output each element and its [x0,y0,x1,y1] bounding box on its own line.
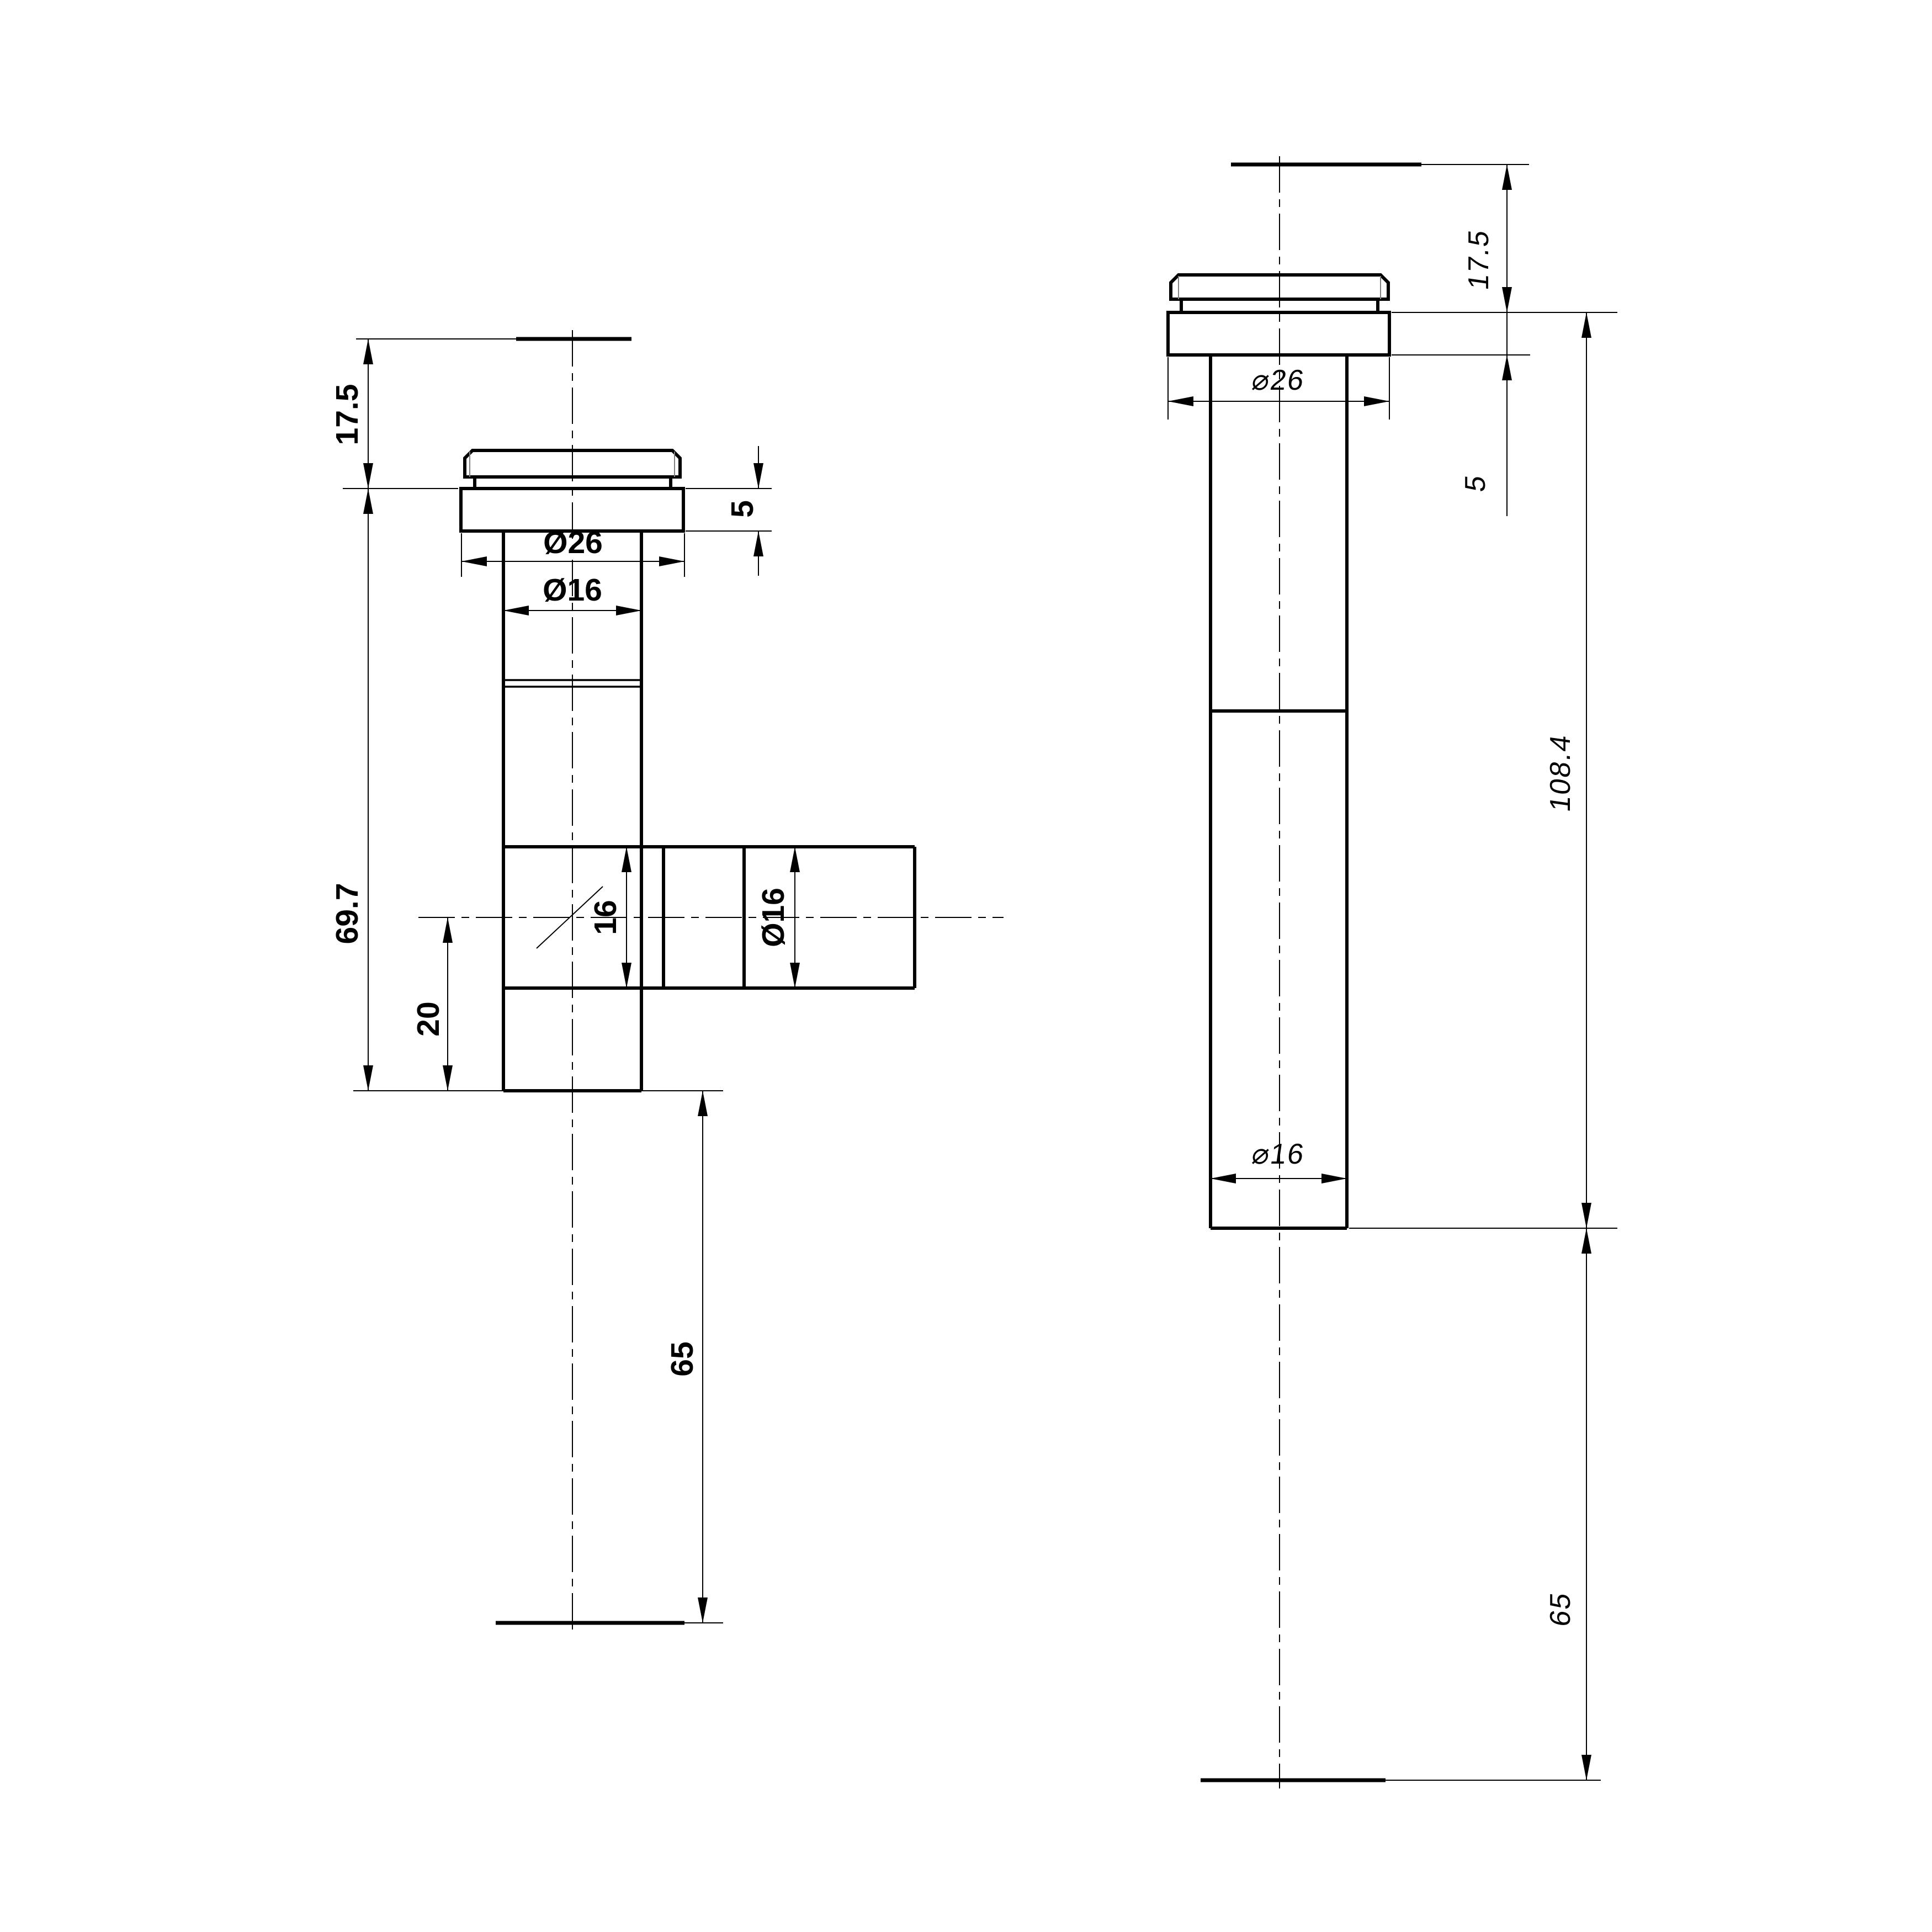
dim-label-front-flange-height: 5 [725,500,760,518]
dim-label-side-tail-length: 65 [1544,1590,1577,1628]
dim-label-front-flange-dia: Ø26 [543,525,603,560]
dim-label-side-total-length: 108.4 [1544,732,1577,814]
dim-label-side-flange-dia: ⌀26 [1250,364,1307,396]
dim-label-front-branch-dia: Ø16 [756,888,791,947]
side-view-part-outline [1168,275,1389,1228]
dim-label-front-top-offset: 17.5 [330,384,365,445]
dim-label-side-top-offset: 17.5 [1463,227,1495,292]
front-view-part-outline [461,450,915,1091]
engineering-drawing: 17.5 69.7 5 Ø26 Ø16 16 Ø16 20 65 17.5 5 … [0,0,1932,1932]
dim-label-front-body-length: 69.7 [330,883,365,944]
dim-label-side-flange-height: 5 [1459,473,1492,494]
dim-label-front-branch-bore: 16 [588,900,623,935]
dim-label-front-branch-offset: 20 [411,1001,446,1036]
dim-label-side-body-dia: ⌀16 [1250,1138,1307,1170]
front-view: 17.5 69.7 5 Ø26 Ø16 16 Ø16 20 65 [330,330,1004,1630]
side-view: 17.5 5 ⌀26 108.4 ⌀16 65 [1168,156,1617,1788]
dim-label-front-body-dia: Ø16 [543,572,602,608]
side-view-dimension-lines [1168,164,1617,1780]
side-view-arrowheads [1168,164,1591,1780]
dim-label-front-tail-length: 65 [665,1341,700,1376]
